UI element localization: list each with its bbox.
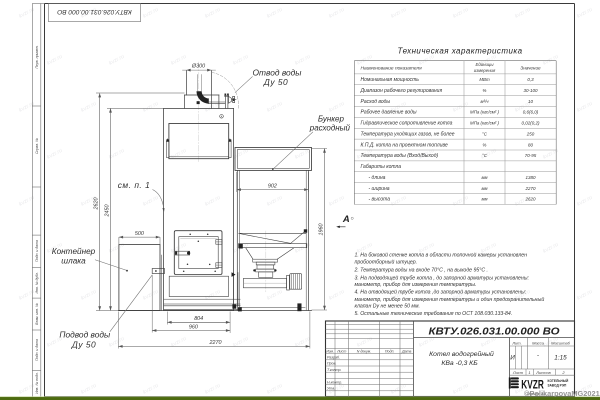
svg-text:2620: 2620 (524, 197, 536, 202)
svg-text:Справ. №: Справ. № (35, 138, 39, 154)
svg-text:Утв.: Утв. (327, 387, 335, 391)
svg-text:1:15: 1:15 (554, 355, 567, 362)
svg-text:пробоотборный штуцер.: пробоотборный штуцер. (355, 259, 418, 266)
svg-text:0,02(0,2): 0,02(0,2) (521, 121, 540, 126)
svg-text:Расход воды: Расход воды (361, 99, 391, 105)
svg-text:Котел водогрейный: Котел водогрейный (429, 350, 494, 358)
svg-text:Подп. и дата: Подп. и дата (35, 240, 39, 262)
svg-text:%: % (483, 88, 487, 93)
svg-text:2270: 2270 (524, 186, 536, 191)
svg-text:Номинальная мощность: Номинальная мощность (361, 77, 420, 83)
svg-text:расходный: расходный (309, 124, 351, 133)
svg-text:70-95: 70-95 (525, 153, 537, 158)
svg-text:ЗАВОД РЭП: ЗАВОД РЭП (548, 384, 568, 388)
svg-text:Инв. № дубл.: Инв. № дубл. (35, 272, 39, 294)
svg-text:МВт: МВт (479, 77, 490, 82)
svg-text:Бункер: Бункер (318, 114, 345, 123)
svg-text:1: 1 (528, 370, 530, 375)
svg-text:шлака: шлака (61, 257, 86, 266)
svg-text:МПа (кгс/см² ): МПа (кгс/см² ) (470, 110, 499, 115)
svg-text:0,3: 0,3 (527, 77, 534, 82)
svg-text:Лист: Лист (336, 349, 346, 353)
svg-text:80: 80 (528, 142, 534, 147)
svg-text:0,6(6,0): 0,6(6,0) (523, 110, 539, 115)
svg-text:КВТУ.026.031.00.000 ВО: КВТУ.026.031.00.000 ВО (57, 8, 131, 15)
svg-text:КОТЕЛЬНЫЙ: КОТЕЛЬНЫЙ (548, 379, 569, 383)
svg-text:Габариты котла: Габариты котла (361, 164, 402, 170)
svg-text:2. Температура воды на входе: 2. Температура воды на входе 70°С , на в… (354, 268, 488, 274)
svg-text:10: 10 (528, 99, 534, 104)
svg-text:КВа -0,3 КБ: КВа -0,3 КБ (441, 360, 478, 367)
svg-text:2450: 2450 (105, 205, 111, 218)
svg-text:Единицы: Единицы (475, 62, 494, 67)
svg-text:И: И (510, 355, 515, 362)
svg-text:мм: мм (481, 186, 487, 191)
svg-text:2620: 2620 (94, 198, 100, 211)
svg-text:°С: °С (482, 153, 488, 158)
svg-text:804: 804 (194, 316, 203, 322)
svg-text:Ду 50: Ду 50 (263, 77, 288, 87)
svg-text:манометр, прибор для измерения: манометр, прибор для измерения температу… (355, 296, 545, 303)
svg-text:КВТУ.026.031.00.000 ВО: КВТУ.026.031.00.000 ВО (429, 326, 560, 337)
svg-text:30-100: 30-100 (523, 88, 538, 93)
svg-text:Изм.: Изм. (326, 349, 334, 353)
svg-text:N докум.: N докум. (357, 349, 372, 353)
svg-text:см. п. 1: см. п. 1 (118, 180, 151, 190)
svg-text:клапан Dу не менее 50 мм.: клапан Dу не менее 50 мм. (355, 303, 420, 309)
svg-text:Температура уходящих газов, не: Температура уходящих газов, не более (361, 131, 455, 137)
svg-text:%: % (483, 142, 487, 147)
svg-text:МПа (кгс/см² ): МПа (кгс/см² ) (470, 121, 499, 126)
svg-text:Перв. примен.: Перв. примен. (35, 45, 39, 68)
svg-text:902: 902 (268, 183, 277, 189)
svg-text:Подп.: Подп. (385, 349, 395, 353)
svg-text:Рабочее давление воды: Рабочее давление воды (361, 110, 417, 116)
svg-text:Лист: Лист (512, 370, 524, 375)
svg-text:мм: мм (481, 197, 487, 202)
svg-text:К.П.Д. котла на проектном топл: К.П.Д. котла на проектном топливе (361, 142, 449, 148)
svg-text:Пров.: Пров. (327, 362, 336, 366)
svg-text:манометр, прибор для измерения: манометр, прибор для измерения температу… (355, 282, 477, 288)
svg-text:1. На боковой стенке котла в: 1. На боковой стенке котла в области топ… (355, 252, 528, 259)
svg-text:Ø300: Ø300 (191, 64, 205, 70)
svg-text:Техническая характеристика: Техническая характеристика (398, 46, 523, 55)
svg-text:Контейнер: Контейнер (52, 247, 96, 256)
svg-text:- ширина: - ширина (369, 186, 390, 192)
svg-text:2270: 2270 (209, 340, 222, 346)
svg-text:Гидравлическое сопротивление к: Гидравлическое сопротивление котла (361, 121, 453, 127)
svg-text:-: - (537, 353, 539, 360)
svg-text:Взам. инв. №: Взам. инв. № (35, 303, 39, 325)
svg-text:Подп. и дата: Подп. и дата (35, 339, 39, 361)
svg-text:Т.контр.: Т.контр. (327, 368, 342, 372)
svg-text:960: 960 (189, 324, 198, 330)
svg-text:Ду 50: Ду 50 (71, 340, 96, 350)
svg-text:м³/ч: м³/ч (481, 99, 490, 104)
svg-text:Диапазон рабочего регулировани: Диапазон рабочего регулирования (360, 88, 443, 94)
svg-text:3. На подводящей трубе котла: 3. На подводящей трубе котла , до запорн… (355, 274, 530, 281)
svg-text:- длина: - длина (369, 175, 386, 181)
svg-text:Наименование показателя: Наименование показателя (361, 65, 423, 71)
svg-text:5. Остальные технические треб: 5. Остальные технические требования по О… (355, 311, 513, 317)
svg-text:Значение: Значение (520, 65, 541, 70)
svg-text:Разраб.: Разраб. (327, 356, 340, 360)
svg-text:Листов: Листов (535, 370, 551, 375)
svg-text:А: А (342, 214, 350, 225)
svg-text:Лит.: Лит. (511, 340, 521, 345)
svg-text:1960: 1960 (319, 224, 325, 236)
svg-text:Дата: Дата (401, 349, 411, 353)
svg-text:Н.контр.: Н.контр. (327, 380, 342, 384)
svg-text:250: 250 (526, 131, 535, 136)
svg-text:Масса: Масса (532, 340, 545, 345)
svg-text:мм: мм (481, 175, 487, 180)
svg-text:Температура воды (Вход/Выход): Температура воды (Вход/Выход) (361, 153, 439, 159)
svg-text:1380: 1380 (525, 175, 536, 180)
svg-text:4. На отводящей трубе котла ,: 4. На отводящей трубе котла ,до запорной… (355, 289, 527, 296)
svg-text:Подвод воды: Подвод воды (59, 330, 110, 340)
svg-text:измерения: измерения (474, 68, 496, 73)
svg-text:Инв. № подл.: Инв. № подл. (35, 372, 39, 394)
svg-text:°С: °С (482, 131, 488, 136)
svg-text:- высота: - высота (369, 197, 391, 203)
svg-text:500: 500 (135, 231, 144, 237)
svg-text:Масштаб: Масштаб (551, 340, 570, 345)
